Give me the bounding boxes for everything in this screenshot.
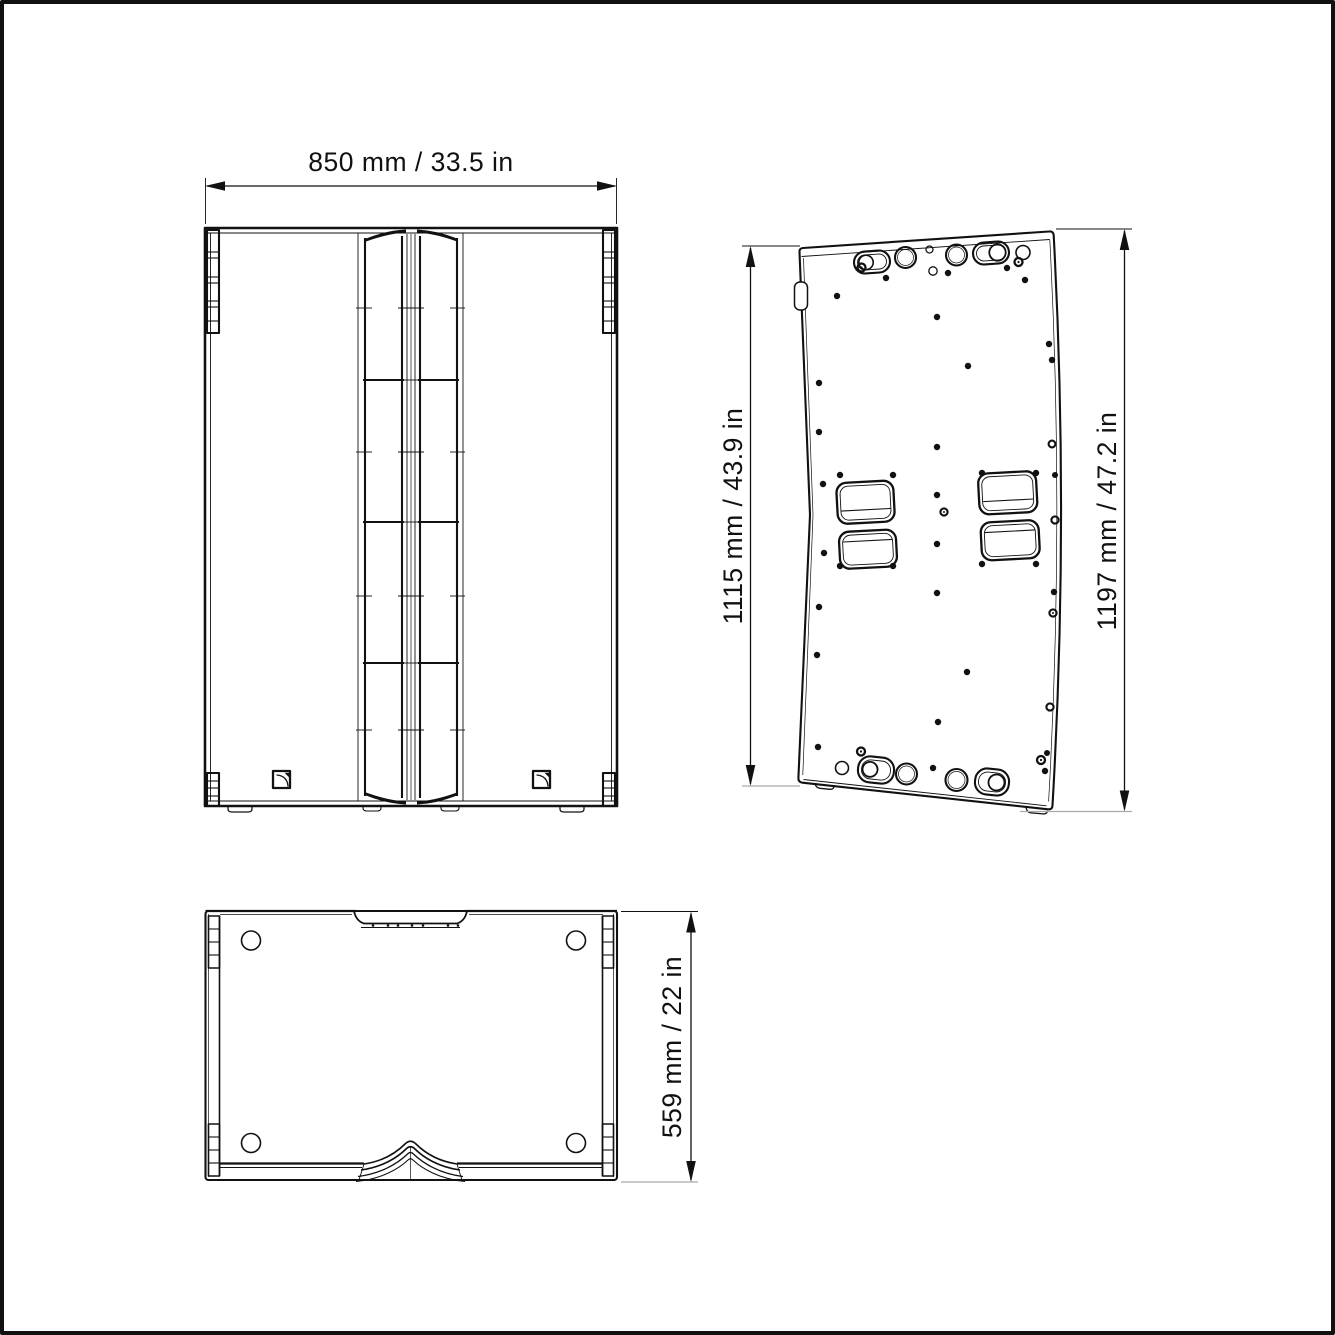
arrow-left-icon (205, 181, 225, 190)
rear-height-left-dimension: 1115 mm / 43.9 in (718, 246, 800, 786)
top-depth-label: 559 mm / 22 in (657, 956, 687, 1138)
top-depth-dimension: 559 mm / 22 in (621, 912, 698, 1183)
arrow-up-icon (1120, 229, 1130, 250)
pin-hole (242, 1134, 261, 1153)
rear-top-fittings (853, 241, 1030, 275)
rear-view: 1115 mm / 43.9 in 1197 mm / 47.2 in (718, 229, 1132, 814)
arrow-down-icon (746, 765, 756, 786)
pin-hole (242, 931, 261, 950)
rear-height-left-label: 1115 mm / 43.9 in (718, 408, 748, 625)
top-view: 559 mm / 22 in (206, 911, 699, 1182)
l-acoustics-logo-icon (533, 771, 550, 788)
front-width-label: 850 mm / 33.5 in (308, 147, 513, 177)
top-notch (354, 911, 467, 928)
l-acoustics-logo-icon (273, 771, 290, 788)
pin-hole (567, 1134, 586, 1153)
arrow-up-icon (686, 912, 696, 933)
rear-edge-tab (795, 282, 808, 310)
front-center-waveguide (356, 230, 465, 805)
top-outline (206, 911, 618, 1180)
front-width-dimension: 850 mm / 33.5 in (205, 147, 617, 224)
arrow-right-icon (597, 181, 617, 190)
strip-ticks (356, 308, 465, 730)
pin-hole (567, 931, 586, 950)
drawing-canvas: 850 mm / 33.5 in (0, 0, 1335, 1335)
arrow-down-icon (686, 1161, 696, 1182)
front-rail-top-right (603, 230, 615, 333)
rear-handles (836, 471, 1040, 569)
top-waveguide-mouth (356, 1141, 465, 1181)
rear-height-right-dimension: 1197 mm / 47.2 in (1020, 229, 1132, 812)
rear-height-right-label: 1197 mm / 47.2 in (1092, 412, 1122, 631)
arrow-up-icon (746, 246, 756, 267)
top-rails (209, 916, 614, 1176)
technical-drawing: 850 mm / 33.5 in (0, 0, 1335, 1335)
front-rail-top-left (207, 230, 219, 333)
arrow-down-icon (1120, 791, 1130, 812)
front-view: 850 mm / 33.5 in (205, 147, 617, 812)
